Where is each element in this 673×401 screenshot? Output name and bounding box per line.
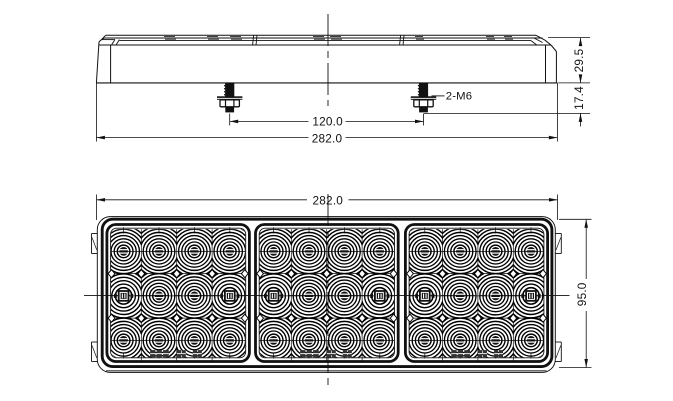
svg-text:17.4: 17.4 [572, 86, 586, 110]
svg-text:120.0: 120.0 [312, 114, 343, 128]
svg-text:95.0: 95.0 [575, 282, 589, 306]
svg-text:282.0: 282.0 [312, 131, 343, 145]
svg-text:29.5: 29.5 [572, 48, 586, 72]
svg-text:282.0: 282.0 [313, 193, 344, 207]
svg-text:2-M6: 2-M6 [446, 91, 473, 103]
